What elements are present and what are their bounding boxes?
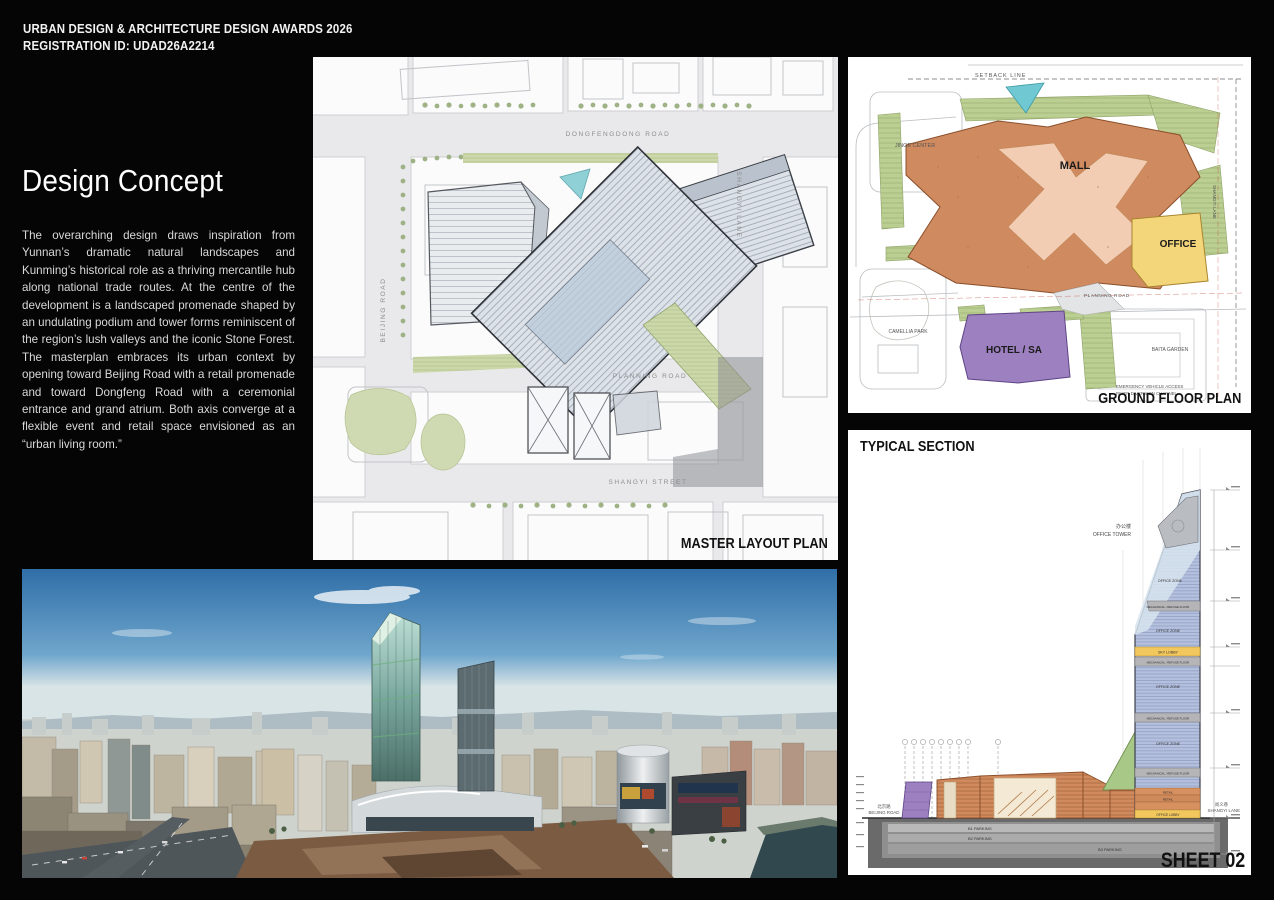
road-label-planning: PLANNING ROAD <box>613 373 688 380</box>
board-title: URBAN DESIGN & ARCHITECTURE DESIGN AWARD… <box>23 20 353 37</box>
registration-id: REGISTRATION ID: UDAD26A2214 <box>23 37 353 54</box>
presentation-board: URBAN DESIGN & ARCHITECTURE DESIGN AWARD… <box>0 0 1274 900</box>
section-shangyi-lane: SHANGYI LANE <box>1208 808 1241 813</box>
master-plan-caption: MASTER LAYOUT PLAN <box>681 535 828 552</box>
road-label-dongfengdong: DONGFENGDONG ROAD <box>566 131 671 138</box>
design-concept-section: Design Concept The overarching design dr… <box>22 163 295 453</box>
setback-label: SETBACK LINE <box>975 73 1026 79</box>
mall-label: MALL <box>1060 160 1091 172</box>
b1-parking-label: B1 PARKING <box>968 826 992 831</box>
ground-plan-drawing: SETBACK LINE JINGE CENTER MALL OFFICE HO… <box>848 57 1251 413</box>
retail-label-1: RETAIL <box>1163 791 1174 795</box>
concept-body: The overarching design draws inspiration… <box>22 227 295 453</box>
master-plan-drawing: DONGFENGDONG ROAD PLANNING ROAD SHANGYI … <box>313 57 838 560</box>
baita-garden-label: BAITA GARDEN <box>1152 347 1189 353</box>
section-shangyi-lane-cn: 尚义巷 <box>1215 801 1229 808</box>
office-lobby-label: OFFICE LOBBY <box>1156 813 1180 817</box>
mech-label-2: MECHANICAL / REFUGE FLOOR <box>1147 661 1190 665</box>
section-title: TYPICAL SECTION <box>860 438 975 455</box>
typical-section-panel: B1 PARKING B2 PARKING B3 PARKING <box>848 430 1251 875</box>
gp-planning-road-label: PLANNING ROAD <box>1084 293 1130 298</box>
jinge-center-label: JINGE CENTER <box>895 143 935 149</box>
section-beijing-road: BEIJING ROAD <box>869 810 900 815</box>
road-label-beijing: BEIJING ROAD <box>380 277 387 342</box>
concept-title: Design Concept <box>22 163 268 199</box>
zone-label-3: OFFICE ZONE <box>1156 685 1181 689</box>
ground-floor-plan-panel: SETBACK LINE JINGE CENTER MALL OFFICE HO… <box>848 57 1251 413</box>
zone-label-2: OFFICE ZONE <box>1156 629 1181 633</box>
section-beijing-road-cn: 北京路 <box>877 803 891 810</box>
office-tower-label-cn: 办公楼 <box>1116 523 1131 530</box>
city-photo <box>22 569 837 878</box>
office-label: OFFICE <box>1160 239 1197 250</box>
b3-parking-label: B3 PARKING <box>1098 847 1122 852</box>
sky-lobby-label: SKY LOBBY <box>1158 651 1179 655</box>
emergency-access-note: EMERGENCY VEHICLE ACCESS <box>1116 384 1183 389</box>
zone-label-4: OFFICE ZONE <box>1156 742 1181 746</box>
board-header: URBAN DESIGN & ARCHITECTURE DESIGN AWARD… <box>23 20 397 54</box>
master-layout-plan-panel: DONGFENGDONG ROAD PLANNING ROAD SHANGYI … <box>313 57 838 560</box>
gp-shangyi-lane-label: SHANGYI LANE <box>1212 185 1217 219</box>
mech-label-3: MECHANICAL / REFUGE FLOOR <box>1147 717 1190 721</box>
sheet-number: SHEET 02 <box>1161 849 1245 873</box>
mech-label-1: MECHANICAL / REFUGE FLOOR <box>1147 605 1190 609</box>
section-drawing: B1 PARKING B2 PARKING B3 PARKING <box>848 430 1251 875</box>
mech-label-4: MECHANICAL / REFUGE FLOOR <box>1147 772 1190 776</box>
retail-label-2: RETAIL <box>1163 798 1174 802</box>
office-footprint <box>1132 213 1208 287</box>
ground-plan-caption: GROUND FLOOR PLAN <box>1098 390 1241 407</box>
zone-label-1: OFFICE ZONE <box>1158 579 1183 583</box>
camellia-park-label: CAMELLIA PARK <box>888 329 928 335</box>
b2-parking-label: B2 PARKING <box>968 836 992 841</box>
hotel-label: HOTEL / SA <box>986 345 1042 356</box>
city-photo-art <box>22 569 837 878</box>
road-label-shangyi-street: SHANGYI STREET <box>608 479 687 486</box>
road-label-shangyi-lane: SHANGYI LANE <box>735 171 742 238</box>
office-tower-label-en: OFFICE TOWER <box>1093 532 1132 538</box>
